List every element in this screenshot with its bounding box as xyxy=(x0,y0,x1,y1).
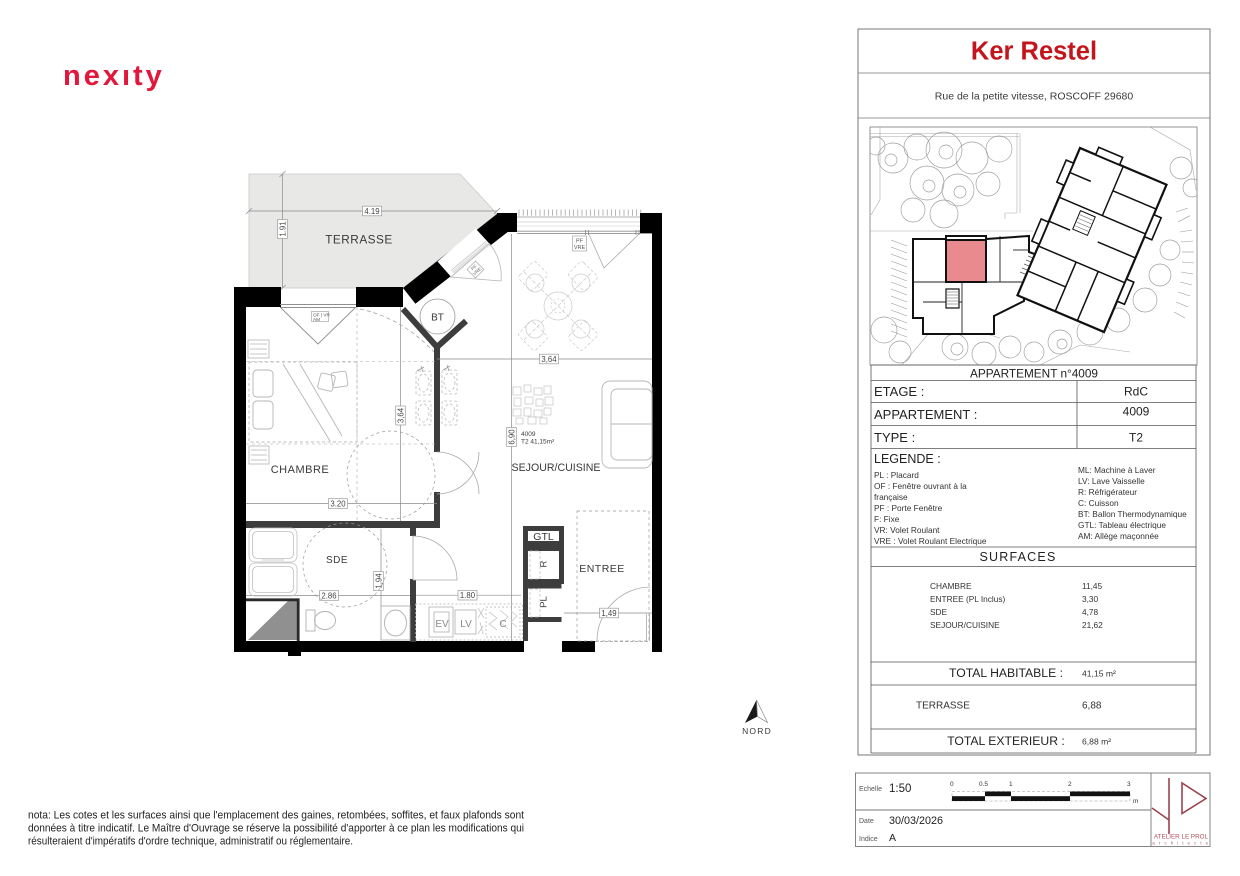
svg-text:RdC: RdC xyxy=(1124,385,1148,399)
svg-text:Indice: Indice xyxy=(859,836,878,843)
svg-text:SEJOUR/CUISINE: SEJOUR/CUISINE xyxy=(930,620,1000,630)
svg-text:AM: Allège maçonnée: AM: Allège maçonnée xyxy=(1078,531,1159,541)
svg-text:NORD: NORD xyxy=(742,726,772,736)
svg-text:PF: PF xyxy=(576,239,584,245)
svg-text:TOTAL EXTERIEUR :: TOTAL EXTERIEUR : xyxy=(947,734,1065,748)
svg-text:nota: Les cotes et les surface: nota: Les cotes et les surfaces ainsi qu… xyxy=(28,810,525,822)
svg-text:T2: T2 xyxy=(1129,431,1143,445)
svg-text:3.20: 3.20 xyxy=(330,499,346,508)
svg-text:TERRASSE: TERRASSE xyxy=(325,233,393,247)
svg-text:1,49: 1,49 xyxy=(601,609,616,618)
svg-text:F: Fixe: F: Fixe xyxy=(874,514,900,524)
svg-text:a r c h i t e c t e: a r c h i t e c t e xyxy=(1152,841,1209,846)
svg-text:21,62: 21,62 xyxy=(1082,620,1103,630)
svg-text:2: 2 xyxy=(1068,781,1072,788)
svg-text:1: 1 xyxy=(1009,781,1013,788)
svg-text:LV: LV xyxy=(460,619,472,630)
svg-text:données à titre indicatif. Le: données à titre indicatif. Le Maître d'O… xyxy=(28,823,524,835)
svg-text:4.19: 4.19 xyxy=(364,207,379,216)
svg-text:LEGENDE :: LEGENDE : xyxy=(874,452,941,466)
svg-text:2.86: 2.86 xyxy=(321,591,336,600)
svg-text:1,94: 1,94 xyxy=(374,573,383,589)
svg-text:1:50: 1:50 xyxy=(889,783,911,795)
svg-text:4009: 4009 xyxy=(521,431,536,438)
svg-text:SEJOUR/CUISINE: SEJOUR/CUISINE xyxy=(512,462,601,474)
svg-text:m: m xyxy=(1133,798,1138,805)
svg-text:OF : Fenêtre ouvrant à la: OF : Fenêtre ouvrant à la xyxy=(874,481,967,491)
svg-text:ENTREE: ENTREE xyxy=(579,563,625,575)
svg-text:41,15 m²: 41,15 m² xyxy=(1082,669,1116,679)
svg-text:nexıty: nexıty xyxy=(63,60,165,92)
svg-text:1.80: 1.80 xyxy=(460,591,476,600)
svg-text:30/03/2026: 30/03/2026 xyxy=(889,815,943,827)
svg-text:TOTAL HABITABLE :: TOTAL HABITABLE : xyxy=(949,666,1063,680)
svg-text:3,30: 3,30 xyxy=(1082,594,1099,604)
svg-text:6,90: 6,90 xyxy=(507,429,516,445)
svg-text:ATELIER LE PROL: ATELIER LE PROL xyxy=(1154,834,1209,841)
svg-text:3,64: 3,64 xyxy=(541,355,557,364)
svg-text:française: française xyxy=(874,492,908,502)
svg-text:0.5: 0.5 xyxy=(979,781,988,788)
svg-text:BT: BT xyxy=(431,313,444,324)
svg-text:SURFACES: SURFACES xyxy=(980,550,1057,564)
svg-text:CHAMBRE: CHAMBRE xyxy=(930,581,972,591)
svg-text:EV: EV xyxy=(435,619,449,630)
svg-text:A: A xyxy=(889,832,896,844)
svg-text:3: 3 xyxy=(1127,781,1131,788)
svg-text:6,88 m²: 6,88 m² xyxy=(1082,737,1111,747)
svg-text:4009: 4009 xyxy=(1123,405,1150,419)
svg-text:ML: Machine à Laver: ML: Machine à Laver xyxy=(1078,465,1156,475)
svg-text:PL : Placard: PL : Placard xyxy=(874,470,919,480)
svg-text:Ker Restel: Ker Restel xyxy=(971,38,1097,66)
svg-text:6,88: 6,88 xyxy=(1082,701,1102,712)
svg-text:VRE : Volet Roulant Electrique: VRE : Volet Roulant Electrique xyxy=(874,536,987,546)
svg-text:résulteraient d'impératifs d'o: résulteraient d'impératifs d'ordre techn… xyxy=(28,836,353,848)
svg-text:T2 41,15m²: T2 41,15m² xyxy=(521,439,555,446)
svg-text:4,78: 4,78 xyxy=(1082,607,1099,617)
svg-text:ETAGE :: ETAGE : xyxy=(874,384,924,399)
svg-text:0: 0 xyxy=(950,781,954,788)
svg-text:BT: Ballon Thermodynamique: BT: Ballon Thermodynamique xyxy=(1078,509,1187,519)
svg-text:LV: Lave Vaisselle: LV: Lave Vaisselle xyxy=(1078,476,1145,486)
svg-text:C: Cuisson: C: Cuisson xyxy=(1078,498,1119,508)
svg-text:11,45: 11,45 xyxy=(1082,581,1103,591)
svg-text:SDE: SDE xyxy=(326,555,348,566)
svg-text:VRE: VRE xyxy=(574,245,586,251)
svg-text:PF : Porte Fenêtre: PF : Porte Fenêtre xyxy=(874,503,943,513)
svg-text:R: Réfrigérateur: R: Réfrigérateur xyxy=(1078,487,1137,497)
svg-text:Rue de la petite vitesse, ROSC: Rue de la petite vitesse, ROSCOFF 29680 xyxy=(935,91,1134,103)
svg-text:CHAMBRE: CHAMBRE xyxy=(271,464,330,476)
svg-text:GTL: GTL xyxy=(533,531,554,543)
svg-text:Date: Date xyxy=(859,818,874,825)
svg-text:TYPE :: TYPE : xyxy=(874,430,915,445)
svg-text:Echelle: Echelle xyxy=(859,786,882,793)
svg-text:VR: Volet Roulant: VR: Volet Roulant xyxy=(874,525,940,535)
svg-text:GTL: Tableau électrique: GTL: Tableau électrique xyxy=(1078,520,1166,530)
svg-text:APPARTEMENT n°4009: APPARTEMENT n°4009 xyxy=(970,367,1098,381)
svg-text:C: C xyxy=(499,619,506,630)
svg-text:TERRASSE: TERRASSE xyxy=(916,701,970,712)
svg-text:3,64: 3,64 xyxy=(396,407,405,423)
svg-text:SDE: SDE xyxy=(930,607,948,617)
svg-text:1.91: 1.91 xyxy=(278,221,287,236)
svg-text:APPARTEMENT :: APPARTEMENT : xyxy=(874,407,977,422)
svg-text:ENTREE (PL Inclus): ENTREE (PL Inclus) xyxy=(930,594,1006,604)
svg-text:AM: AM xyxy=(313,317,320,322)
